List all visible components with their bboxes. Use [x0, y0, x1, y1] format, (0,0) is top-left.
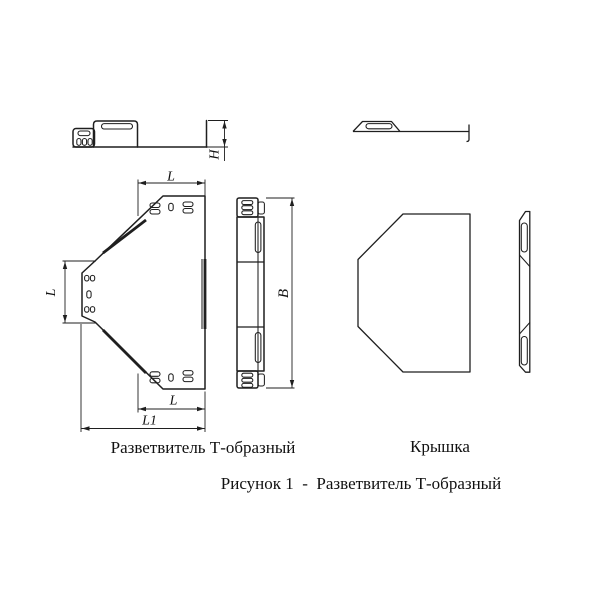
bend-line [520, 255, 530, 267]
fold-edge-bottom [103, 330, 146, 373]
connector-hole [242, 383, 253, 387]
slot [150, 372, 160, 377]
slot [90, 275, 94, 281]
arrowhead [290, 380, 294, 387]
arrowhead [63, 262, 67, 269]
connector-hole [77, 139, 81, 146]
arrowhead [197, 181, 204, 185]
arrowhead [197, 426, 204, 430]
splitter-end-view [237, 198, 264, 388]
slot [183, 371, 193, 376]
arrowhead [63, 315, 67, 322]
dim-label-L-left: L [44, 288, 59, 297]
arrowhead [82, 426, 90, 430]
cover-outline [358, 214, 470, 372]
body-outline [237, 217, 264, 371]
cover-end-view [520, 212, 530, 373]
dimension-B: B [266, 198, 295, 388]
dim-label-H: H [208, 149, 223, 161]
raised-flange [94, 121, 138, 147]
slot [169, 374, 174, 381]
connector-hole [88, 139, 92, 146]
strip-slot [521, 337, 527, 366]
cover-profile-outline [353, 122, 469, 132]
bottom-tab [258, 374, 264, 386]
dim-label-L1: L1 [141, 414, 157, 429]
strip-slot [521, 223, 527, 252]
technical-drawing: H L [0, 0, 600, 600]
slot [85, 307, 89, 313]
slot [169, 203, 174, 210]
connector-hole [242, 378, 253, 382]
cover-profile-view [353, 122, 469, 142]
fold-edge-top [103, 220, 146, 253]
slot [87, 291, 91, 298]
cover-profile-slot [366, 124, 392, 129]
arrowhead [222, 121, 226, 129]
arrowhead [222, 139, 226, 146]
connector-hole [242, 201, 253, 205]
flange-slot [102, 124, 133, 129]
splitter-label: Разветвитель Т-образный [111, 438, 296, 457]
dim-label-B: B [276, 289, 292, 298]
arrowhead [139, 181, 146, 185]
dimension-H: H [208, 121, 229, 162]
t-outline [82, 196, 205, 389]
connector-slot [78, 131, 90, 136]
drawing-sheet: H L [0, 0, 600, 600]
arrowhead [139, 407, 146, 411]
top-tab [258, 202, 264, 214]
cover-label: Крышка [410, 437, 470, 456]
figure-caption: Рисунок 1 - Разветвитель Т-образный [221, 474, 501, 493]
slot [85, 275, 89, 281]
dimension-L1: L1 [81, 324, 205, 432]
bend-line [520, 323, 530, 335]
dim-label-L-bottom: L [169, 394, 178, 409]
connector-hole [242, 206, 253, 210]
dimension-L-left: L [44, 261, 96, 323]
slot [183, 209, 193, 214]
slot [183, 377, 193, 382]
connector-hole [242, 373, 253, 377]
dim-label-L-top: L [166, 170, 175, 185]
arrowhead [290, 199, 294, 206]
slot [90, 307, 94, 313]
section-line [237, 262, 264, 327]
arrowhead [197, 407, 204, 411]
cover-hook-end [467, 125, 470, 142]
connector-hole [82, 139, 86, 146]
splitter-side-view [73, 121, 207, 148]
slot [150, 210, 160, 215]
splitter-plan-view [82, 196, 205, 389]
connector-hole [242, 211, 253, 215]
slot [183, 202, 193, 207]
cover-plan-view [358, 214, 470, 372]
dimension-L-top: L [138, 170, 205, 217]
